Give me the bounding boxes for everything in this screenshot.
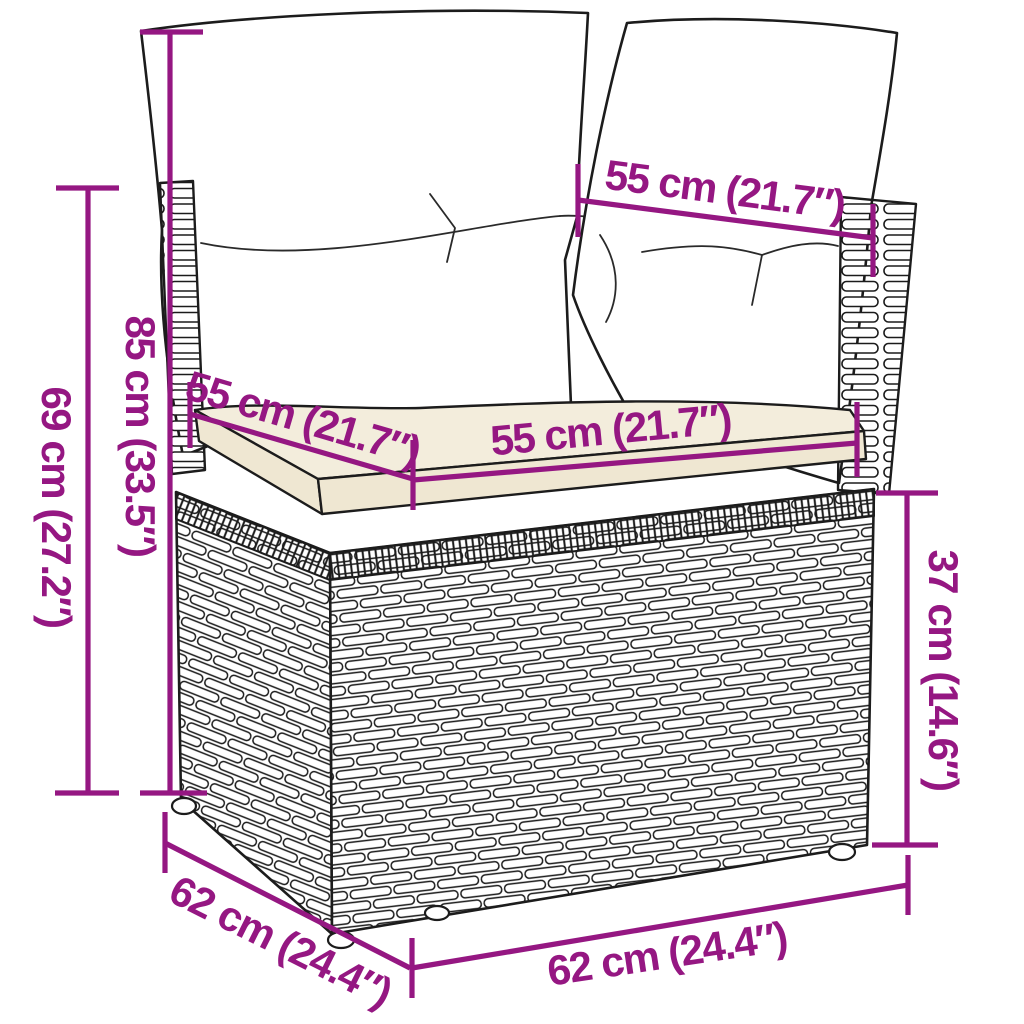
foot	[172, 798, 196, 814]
base-frame	[172, 489, 874, 948]
sofa-drawing	[141, 11, 916, 948]
sofa-dimension-drawing: 55 cm (21.7″) 85 cm (33.5″) 69 cm (27.2″…	[0, 0, 1024, 1024]
label-seat-height: 37 cm (14.6″)	[920, 549, 967, 790]
foot	[425, 906, 449, 920]
label-frame-height: 69 cm (27.2″)	[33, 386, 80, 627]
product-dimension-diagram: 55 cm (21.7″) 85 cm (33.5″) 69 cm (27.2″…	[0, 0, 1024, 1024]
label-height-with-cushions: 85 cm (33.5″)	[117, 315, 164, 556]
foot	[829, 844, 855, 860]
